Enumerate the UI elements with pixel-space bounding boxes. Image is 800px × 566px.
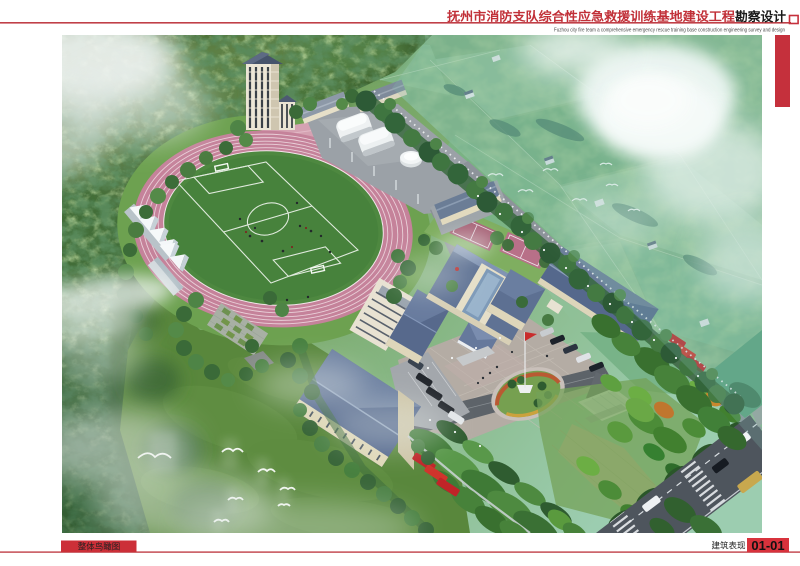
svg-text:建筑表现: 建筑表现 xyxy=(711,541,746,551)
svg-text:01-01: 01-01 xyxy=(751,538,784,553)
svg-text:勘察设计: 勘察设计 xyxy=(735,9,786,24)
svg-text:整体鸟瞰图: 整体鸟瞰图 xyxy=(78,542,121,552)
svg-text:抚州市消防支队综合性应急救援训练基地建设工程: 抚州市消防支队综合性应急救援训练基地建设工程 xyxy=(447,9,735,24)
svg-text:Fuzhou city fire team a compre: Fuzhou city fire team a comprehensive em… xyxy=(554,28,785,34)
